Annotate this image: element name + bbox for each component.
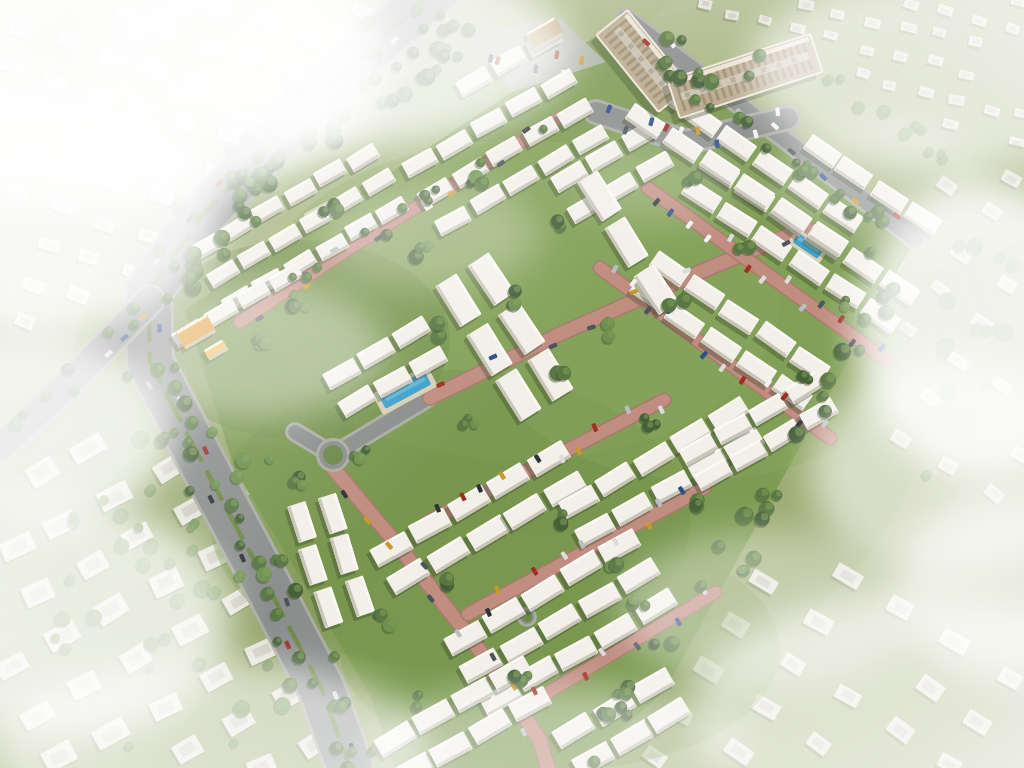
aerial-site-render bbox=[0, 0, 1024, 768]
render-viewport: Aerial 3D rendering of a residential com… bbox=[0, 0, 1024, 768]
vignette-layer bbox=[0, 0, 1024, 768]
